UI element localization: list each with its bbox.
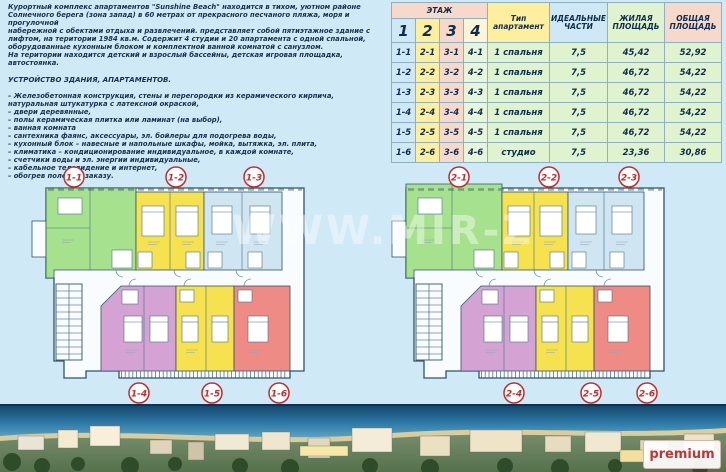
floor-number: 2 [416, 19, 440, 43]
apt-cell: 1-6 [392, 143, 416, 163]
intro-line: оборудованные кухонным блоком и комплект… [8, 43, 388, 51]
apt-cell: 3-2 [440, 63, 464, 83]
apt-label: 2-4 [506, 390, 522, 400]
apt-cell: 4-6 [464, 143, 488, 163]
apt-label: 2-3 [621, 174, 637, 184]
ideal-parts-value: 7,5 [550, 43, 608, 63]
apt-label: 1-5 [204, 390, 220, 400]
apt-cell: 3-4 [440, 103, 464, 123]
terrace [32, 221, 46, 257]
intro-line: Солнечного берега (зона запад) в 60 метр… [8, 11, 388, 27]
premium-logo: premium [643, 440, 721, 469]
ideal-parts-value: 7,5 [550, 83, 608, 103]
total-area-column-header: ОБЩАЯ ПЛОЩАДЬ [665, 3, 722, 43]
floor-number: 1 [392, 19, 416, 43]
feature-item: – двери деревянные, [8, 108, 388, 116]
living-area-column-header: ЖИЛАЯ ПЛОЩАДЬ [608, 3, 665, 43]
terrace [392, 221, 406, 257]
floor-plan-level-1: 1-1 1-2 1-3 1-4 1-5 1-6 [24, 166, 364, 406]
apt-type: 1 спальня [488, 83, 550, 103]
staircase [416, 284, 442, 360]
apt-cell: 3-6 [440, 143, 464, 163]
total-area-value: 54,22 [665, 83, 722, 103]
apt-type: студио [488, 143, 550, 163]
floor-number: 4 [464, 19, 488, 43]
ideal-parts-column-header: ИДЕАЛЬНЫЕ ЧАСТИ [550, 3, 608, 43]
apt-label: 2-6 [639, 390, 655, 400]
ideal-parts-value: 7,5 [550, 63, 608, 83]
ideal-parts-value: 7,5 [550, 143, 608, 163]
apartment-table: ЭТАЖ Тип апартамент ИДЕАЛЬНЫЕ ЧАСТИ ЖИЛА… [391, 2, 722, 163]
apt-label: 1-6 [271, 390, 287, 400]
staircase [56, 284, 82, 360]
building-structure-heading: УСТРОЙСТВО ЗДАНИЯ, АПАРТАМЕНТОВ. [8, 76, 388, 84]
total-area-value: 54,22 [665, 63, 722, 83]
apt-cell: 1-5 [392, 123, 416, 143]
table-row: 1-4 2-4 3-4 4-4 1 спальня 7,5 46,72 54,2… [392, 103, 722, 123]
panorama-drawing [0, 406, 726, 472]
apt-cell: 2-6 [416, 143, 440, 163]
intro-line: лифтом, на територии 1984 кв.м. Содержит… [8, 35, 388, 43]
apt-label: 2-5 [583, 390, 599, 400]
apt-label: 1-1 [66, 174, 82, 184]
apt-label: 1-3 [246, 174, 262, 184]
apt-cell: 2-3 [416, 83, 440, 103]
apt-cell: 2-2 [416, 63, 440, 83]
living-area-value: 23,36 [608, 143, 665, 163]
feature-item: – ванная комната [8, 124, 388, 132]
apt-cell: 2-5 [416, 123, 440, 143]
apt-cell: 4-5 [464, 123, 488, 143]
apt-cell: 1-1 [392, 43, 416, 63]
ideal-parts-value: 7,5 [550, 123, 608, 143]
apt-type: 1 спальня [488, 103, 550, 123]
table-row: 1-3 2-3 3-3 4-3 1 спальня 7,5 46,72 54,2… [392, 83, 722, 103]
total-area-value: 52,92 [665, 43, 722, 63]
living-area-value: 46,72 [608, 83, 665, 103]
apt-cell: 1-2 [392, 63, 416, 83]
feature-item: – Железобетонная конструкция, стены и пе… [8, 92, 388, 100]
apt-cell: 3-3 [440, 83, 464, 103]
type-column-header: Тип апартамент [488, 3, 550, 43]
premium-logo-text: premium [649, 447, 714, 462]
table-row: 1-5 2-5 3-5 4-5 1 спальня 7,5 46,72 54,2… [392, 123, 722, 143]
table-row: 1-1 2-1 3-1 4-1 1 спальня 7,5 45,42 52,9… [392, 43, 722, 63]
feature-item: – климатика – кондиционирование индивиду… [8, 148, 388, 156]
apt-label: 1-4 [131, 390, 147, 400]
apt-cell: 2-4 [416, 103, 440, 123]
intro-text-block: Курортный комплекс апартаментов "Sunshin… [8, 3, 388, 180]
living-area-value: 46,72 [608, 63, 665, 83]
living-area-value: 45,42 [608, 43, 665, 63]
apt-label: 2-2 [541, 174, 557, 184]
apt-label: 1-2 [168, 174, 184, 184]
intro-line: Курортный комплекс апартаментов "Sunshin… [8, 3, 388, 11]
feature-item: натуральная штукатурка с латексной окрас… [8, 100, 388, 108]
living-area-value: 46,72 [608, 103, 665, 123]
ideal-parts-value: 7,5 [550, 103, 608, 123]
table-row: 1-6 2-6 3-6 4-6 студио 7,5 23,36 30,86 [392, 143, 722, 163]
apt-cell: 1-4 [392, 103, 416, 123]
living-area-value: 46,72 [608, 123, 665, 143]
apt-type: 1 спальня [488, 63, 550, 83]
apt-cell: 4-1 [464, 43, 488, 63]
total-area-value: 54,22 [665, 103, 722, 123]
apt-cell: 4-4 [464, 103, 488, 123]
feature-item: – счетчики воды и эл. энергии индивидуал… [8, 156, 388, 164]
floor-plan-level-2: 2-1 2-2 2-3 2-4 2-5 2-6 [384, 166, 724, 406]
apt-cell: 4-3 [464, 83, 488, 103]
apt-cell: 1-3 [392, 83, 416, 103]
floor-number: 3 [440, 19, 464, 43]
apt-cell: 2-1 [416, 43, 440, 63]
total-area-value: 54,22 [665, 123, 722, 143]
apt-label: 2-1 [451, 174, 467, 184]
floor-header: ЭТАЖ [392, 3, 488, 19]
apt-type: 1 спальня [488, 43, 550, 63]
feature-item: – сантехника фаянс, аксессуары, эл. бойл… [8, 132, 388, 140]
apt-cell: 3-5 [440, 123, 464, 143]
apt-cell: 3-1 [440, 43, 464, 63]
apt-type: 1 спальня [488, 123, 550, 143]
apt-cell: 4-2 [464, 63, 488, 83]
feature-item: – полы керамическая плитка или ламинат (… [8, 116, 388, 124]
intro-line: На територии находится детский и взрослы… [8, 51, 388, 67]
beach-panorama-photo: premium [0, 404, 726, 472]
feature-item: – кухонный блок – навесные и напольные ш… [8, 140, 388, 148]
intro-line: набережной с обектами отдыха и развлечен… [8, 27, 388, 35]
table-row: 1-2 2-2 3-2 4-2 1 спальня 7,5 46,72 54,2… [392, 63, 722, 83]
total-area-value: 30,86 [665, 143, 722, 163]
